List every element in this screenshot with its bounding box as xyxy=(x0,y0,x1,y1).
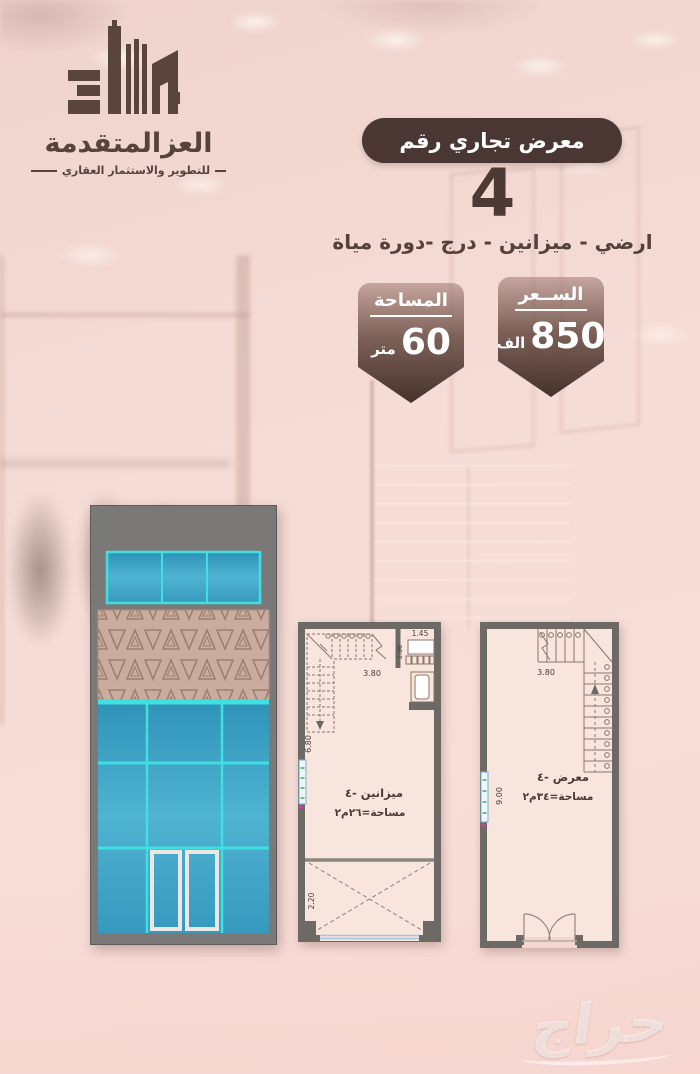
haraj-watermark: حراج xyxy=(499,989,700,1069)
ground-plan-name: معرض -٤ xyxy=(537,770,589,784)
area-badge-unit: متر xyxy=(371,340,396,358)
price-badge-unit: الف xyxy=(497,334,526,352)
dim-side-height: 9.00 xyxy=(495,787,504,805)
mezzanine-floor-plan: 1.45 1.00 3.80 6.80 2.20 ميزانين -٤ مساح… xyxy=(298,622,441,942)
ground-floor-plan: 3.80 9.00 معرض -٤ مساحة=٣٤م٢ xyxy=(480,622,619,948)
facade-top-window xyxy=(107,552,260,603)
real-estate-poster: العزالمتقدمة للتطوير والاستثمار العقاري … xyxy=(0,0,700,1074)
dim-bath-depth: 1.00 xyxy=(396,645,404,659)
area-badge-value: 60 xyxy=(401,325,451,361)
price-badge-label: الســعر xyxy=(515,284,588,311)
ground-plan-area: مساحة=٣٤م٢ xyxy=(523,791,594,803)
area-badge: المساحة 60 متر xyxy=(358,283,464,403)
area-badge-valuerow: 60 متر xyxy=(371,325,451,361)
tagline-dash-left xyxy=(31,170,57,172)
tagline-text: للتطوير والاستثمار العقاري xyxy=(62,164,210,177)
logo-title: العزالمتقدمة xyxy=(26,128,231,159)
price-badge-value: 850 xyxy=(530,319,605,355)
price-badge-valuerow: 850 الف xyxy=(497,319,606,355)
mezzanine-plan-area: مساحة=٢٦م٢ xyxy=(335,807,406,819)
tagline-dash-right xyxy=(215,170,226,172)
mezzanine-plan-name: ميزانين -٤ xyxy=(345,786,403,800)
price-badge: الســعر 850 الف xyxy=(498,277,604,397)
unit-number: 4 xyxy=(425,158,560,231)
background-shelving xyxy=(375,465,570,630)
dim-void-depth: 2.20 xyxy=(307,892,316,909)
facade-pattern-band xyxy=(98,610,269,700)
window-marker xyxy=(299,760,306,809)
area-badge-label: المساحة xyxy=(370,290,452,317)
window-marker xyxy=(481,772,488,827)
background-column xyxy=(370,380,374,630)
company-logo: العزالمتقدمة للتطوير والاستثمار العقاري xyxy=(26,20,231,177)
logo-tagline: للتطوير والاستثمار العقاري xyxy=(26,164,231,177)
facade-lower-glass xyxy=(98,700,269,933)
building-logo-icon xyxy=(66,20,192,132)
dim-inner-width: 3.80 xyxy=(537,668,555,677)
dim-inner-width: 3.80 xyxy=(363,669,381,678)
features-line: ارضي - ميزانين - درج -دورة مياة xyxy=(330,230,655,254)
dim-side-height: 6.80 xyxy=(304,735,313,753)
dim-bath-width: 1.45 xyxy=(412,629,429,638)
facade-render xyxy=(90,505,277,945)
